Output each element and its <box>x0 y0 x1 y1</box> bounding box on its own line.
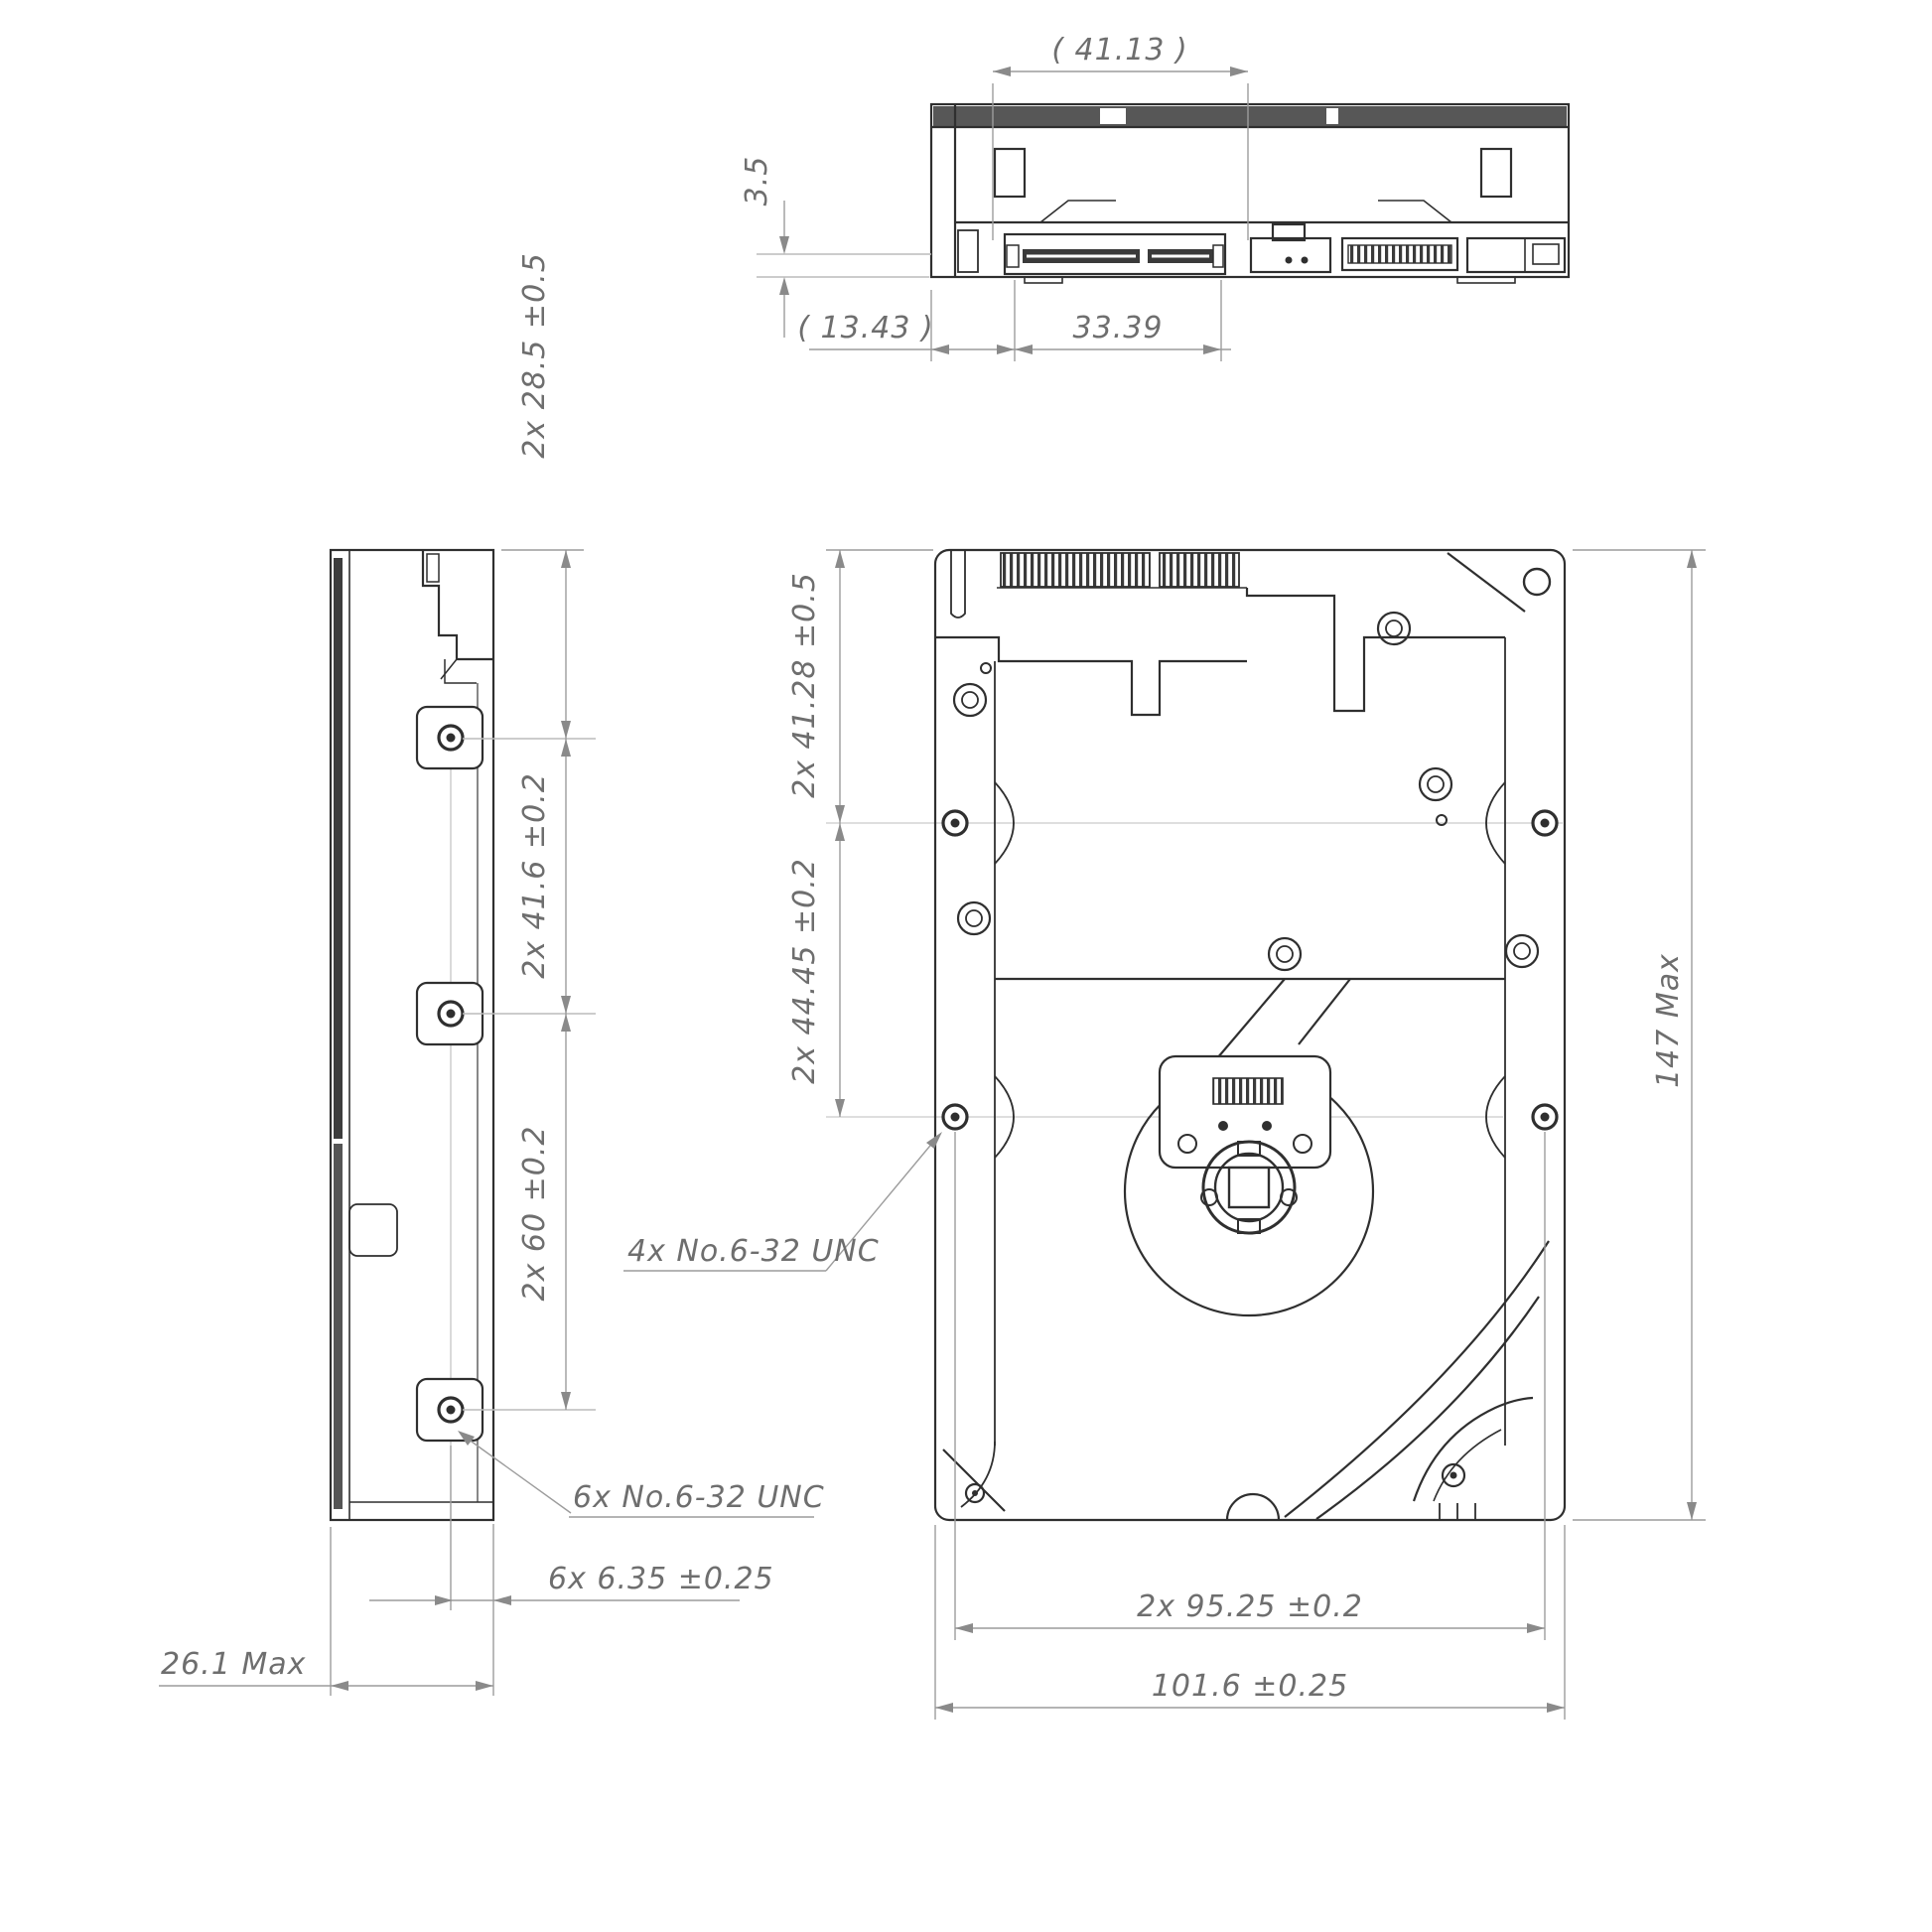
dim-rear-left-gap: ( 13.43 ) <box>797 311 933 345</box>
corner-gusset-tr <box>1448 553 1525 612</box>
motor-fpc-connector <box>1213 1078 1283 1104</box>
dim-side-hole-offset: 6x 6.35 ±0.25 <box>548 1562 774 1596</box>
screw-head <box>1378 613 1410 644</box>
pcb-screws <box>954 613 1538 970</box>
latch-slot-left <box>995 149 1025 197</box>
screw-head <box>954 684 986 716</box>
power-connector <box>1251 238 1330 272</box>
actuator-arc-outer <box>1285 1241 1549 1517</box>
base-casting-step <box>1247 588 1505 711</box>
corner-block-br <box>1414 1398 1533 1501</box>
bottom-edge-notch <box>1227 1494 1279 1520</box>
jumper-pins <box>1348 245 1451 263</box>
dim-rear-width-ref: ( 41.13 ) <box>1051 33 1187 68</box>
screw-head <box>958 902 990 934</box>
cover-seam <box>334 558 343 1139</box>
latch-slot-right <box>1481 149 1511 197</box>
dim-bottom-length: 147 Max <box>1651 953 1686 1088</box>
note-side-thread: 6x No.6-32 UNC <box>573 1480 825 1515</box>
dim-side-pitch-upper: 2x 41.6 ±0.2 <box>517 772 552 979</box>
sata-data-pins <box>1001 553 1150 587</box>
motor-bracket <box>1160 1056 1330 1168</box>
dim-side-pitch-lower: 2x 60 ±0.2 <box>517 1126 552 1302</box>
dim-rear-connector-width: 33.39 <box>1073 311 1164 345</box>
screw-head <box>1269 938 1301 970</box>
dim-side-end-to-hole: 2x 28.5 ±0.5 <box>517 252 552 459</box>
dim-bottom-hole-span: 2x 95.25 ±0.2 <box>1137 1589 1363 1624</box>
side-view <box>331 550 493 1520</box>
motor-flex-band <box>1217 979 1350 1058</box>
base-casting-step <box>935 637 1247 715</box>
side-slot <box>349 1204 397 1256</box>
dim-side-height: 26.1 Max <box>161 1647 306 1682</box>
dim-bottom-pitch: 2x 44.45 ±0.2 <box>787 858 822 1084</box>
hdd-dimension-drawing: ( 41.13 ) 3.5 ( 13.43 ) 33.39 2x 28.5 ±0… <box>0 0 1932 1932</box>
spindle-hub-center <box>1229 1168 1269 1207</box>
bottom-view <box>826 550 1565 1520</box>
drawing-sheet: ( 41.13 ) 3.5 ( 13.43 ) 33.39 2x 28.5 ±0… <box>0 0 1932 1932</box>
pin-dot <box>981 663 991 673</box>
cover-edge-strip <box>933 106 1567 126</box>
dim-bottom-width: 101.6 ±0.25 <box>1152 1669 1348 1704</box>
screw-head <box>1506 935 1538 967</box>
rear-connector-view <box>931 104 1569 283</box>
screw-head <box>1420 768 1451 800</box>
dim-bottom-end-to-hole: 2x 41.28 ±0.5 <box>787 572 822 798</box>
bottom-body-outline <box>935 550 1565 1520</box>
dim-rear-connector-height: 3.5 <box>740 156 774 207</box>
note-bottom-thread: 4x No.6-32 UNC <box>627 1234 880 1269</box>
sata-power-pins <box>1160 553 1239 587</box>
connector-recess-profile <box>423 550 493 659</box>
